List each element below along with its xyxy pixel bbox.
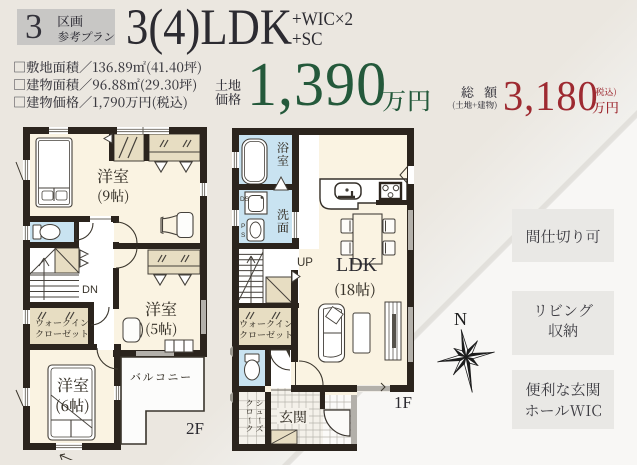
svg-text:N: N	[454, 309, 467, 329]
svg-text:P: P	[241, 223, 245, 230]
svg-text:DS: DS	[240, 196, 250, 203]
svg-text:UP: UP	[297, 257, 313, 269]
svg-text:LDK: LDK	[336, 254, 378, 276]
svg-text:S: S	[241, 232, 246, 239]
svg-text:2F: 2F	[186, 419, 204, 438]
svg-text:1F: 1F	[394, 393, 412, 412]
svg-text:DN: DN	[82, 284, 98, 296]
